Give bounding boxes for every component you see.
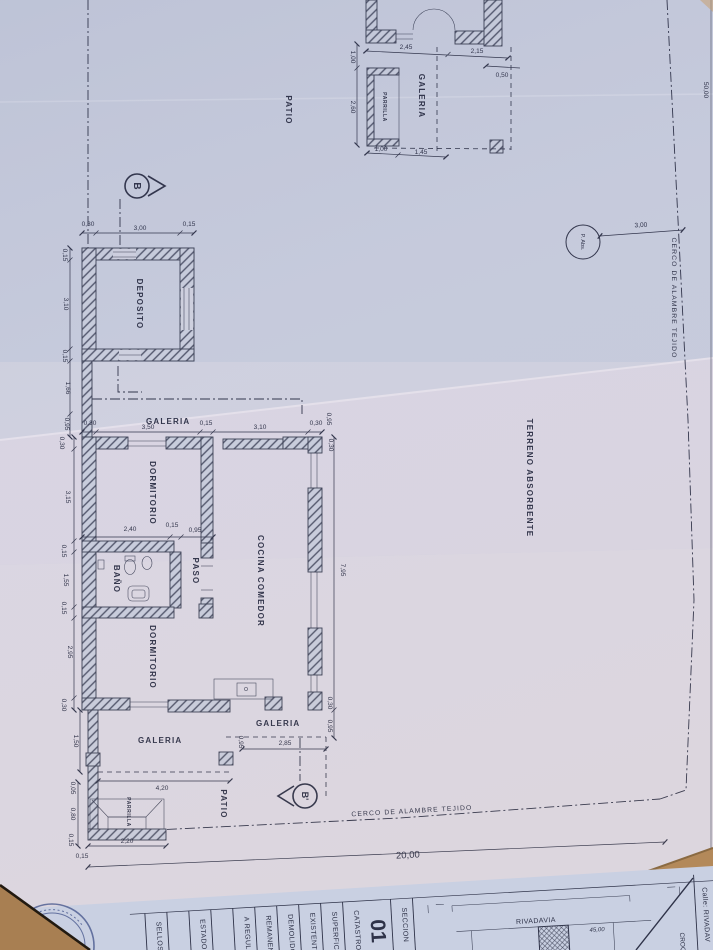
floor-plan-drawing: 50,00 CERCO DE ALAMBRE TEJIDO CERCO DE A… xyxy=(0,0,713,950)
photographed-floor-plan: 50,00 CERCO DE ALAMBRE TEJIDO CERCO DE A… xyxy=(0,0,713,950)
photo-shading xyxy=(0,0,713,950)
croquis-street-dim: 45,00 xyxy=(589,927,605,934)
croquis-lot xyxy=(538,925,570,950)
tb-croquis-label: CROQ xyxy=(678,932,686,950)
tb-seccion-number: 01 xyxy=(366,919,390,944)
